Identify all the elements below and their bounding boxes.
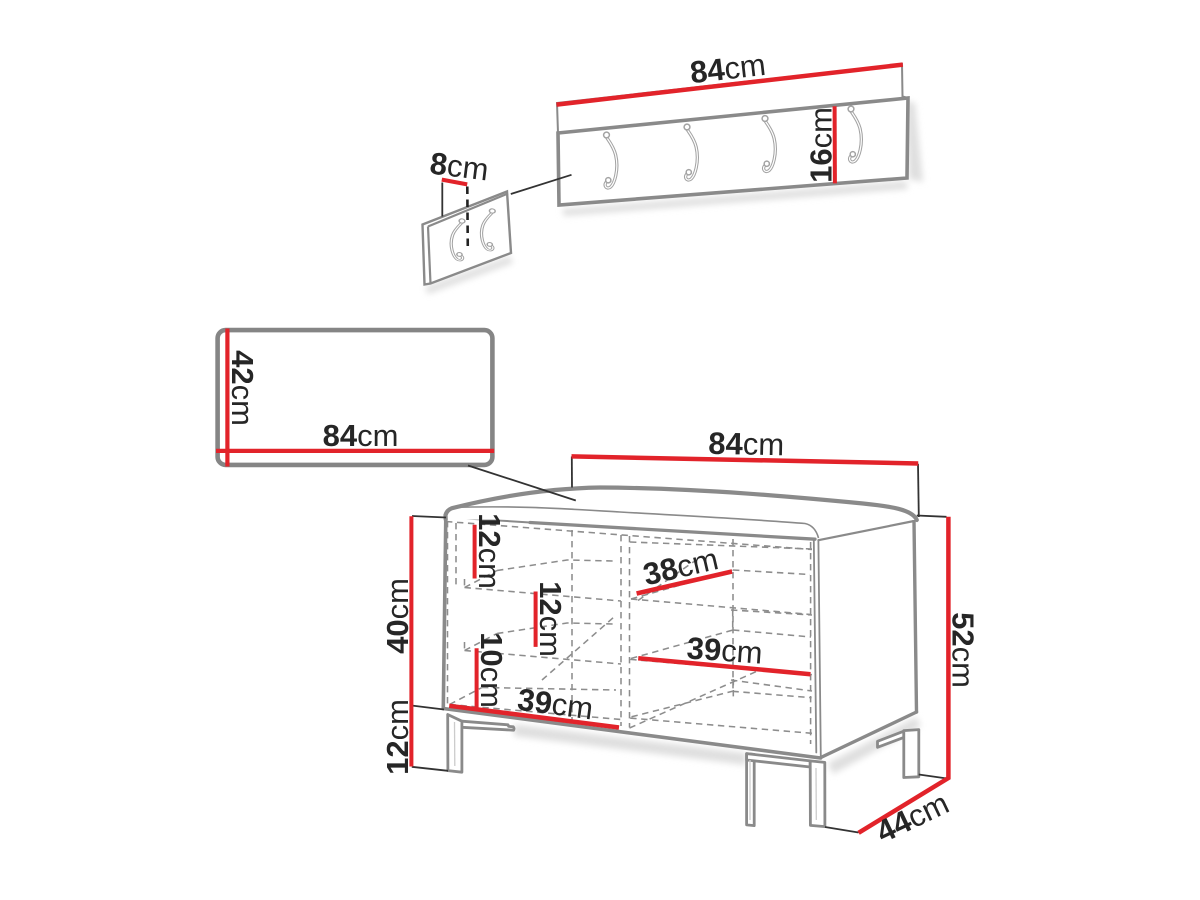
svg-text:12cm: 12cm <box>380 699 415 775</box>
svg-text:39cm: 39cm <box>686 630 764 670</box>
svg-text:44cm: 44cm <box>871 785 954 849</box>
svg-text:84cm: 84cm <box>323 418 399 453</box>
svg-text:8cm: 8cm <box>428 146 490 188</box>
svg-text:16cm: 16cm <box>804 107 839 183</box>
svg-text:52cm: 52cm <box>946 612 981 688</box>
svg-text:12cm: 12cm <box>472 513 507 589</box>
svg-text:10cm: 10cm <box>474 632 509 708</box>
svg-text:12cm: 12cm <box>533 581 568 657</box>
svg-text:40cm: 40cm <box>380 578 415 654</box>
svg-text:42cm: 42cm <box>225 350 260 426</box>
svg-text:84cm: 84cm <box>708 426 785 463</box>
